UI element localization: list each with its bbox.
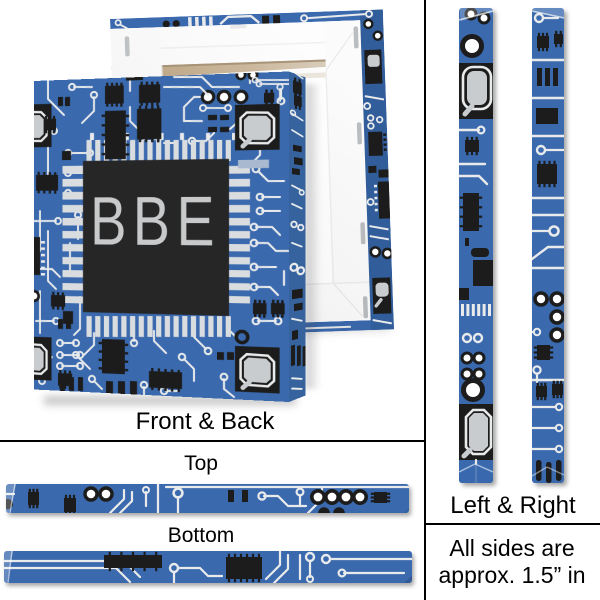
svg-text:BBE: BBE: [90, 182, 221, 261]
